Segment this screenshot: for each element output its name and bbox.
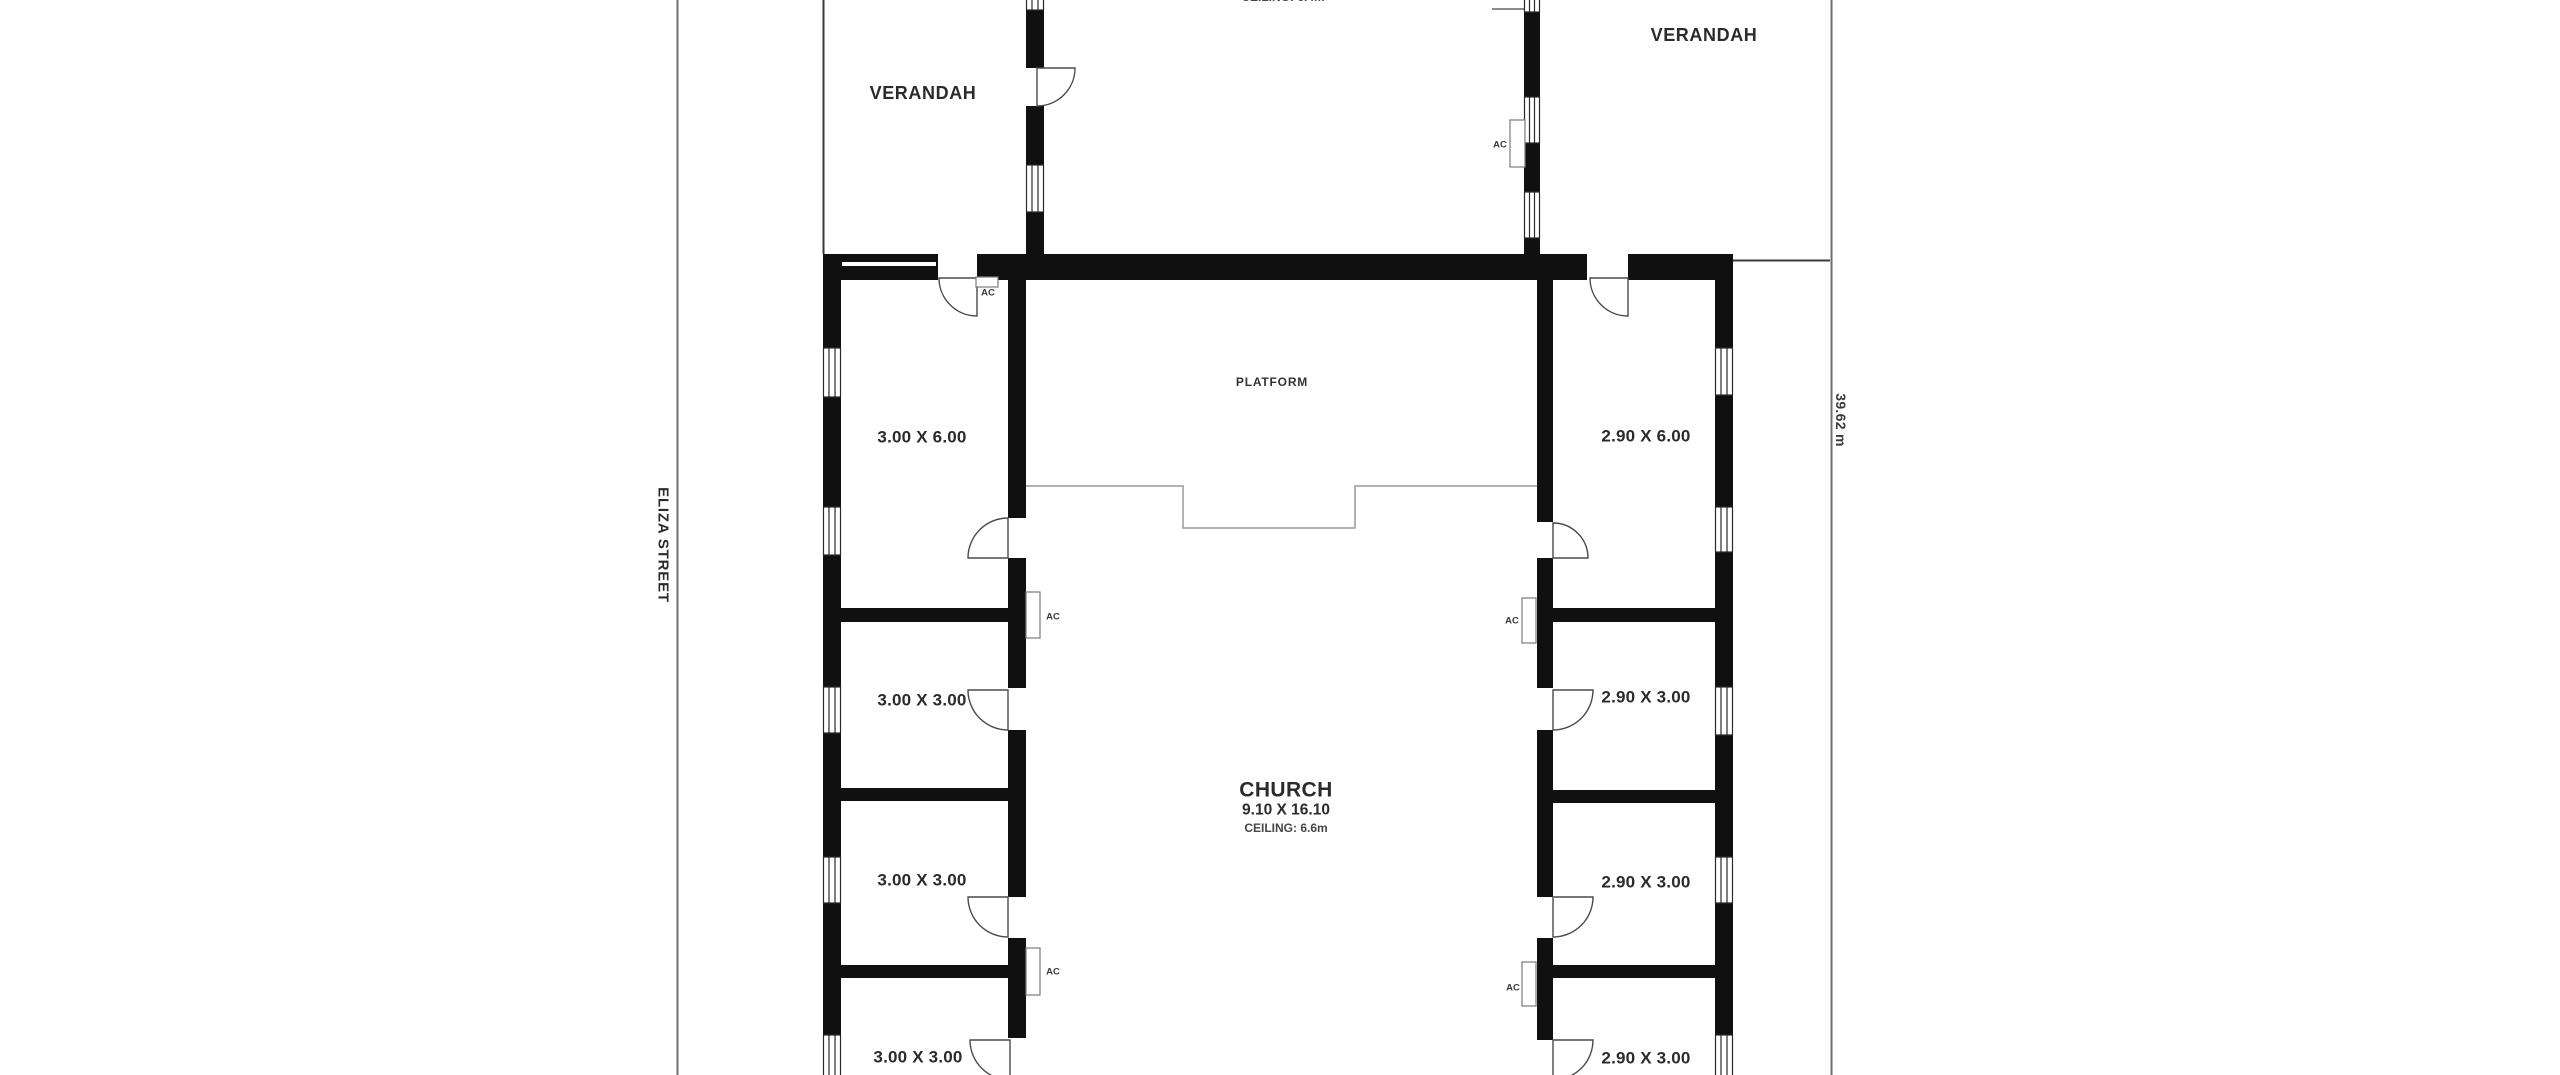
door-arc (1553, 897, 1593, 937)
window (824, 348, 841, 397)
main-wall-sliver (842, 262, 936, 266)
street-label: ELIZA STREET (656, 487, 671, 603)
window (1716, 348, 1733, 395)
door-arc (1553, 690, 1593, 730)
ac-unit (1510, 120, 1525, 167)
window (1716, 687, 1733, 735)
main-wall-center-segment (977, 254, 1587, 280)
floor-plan-page: ELIZA STREET 39.62 m VERANDAH VERANDAH C… (0, 0, 2560, 1075)
window (1716, 857, 1733, 903)
window (1027, 0, 1044, 10)
ac-units (976, 120, 1536, 1006)
window (1525, 192, 1540, 238)
room-label-right-2: 2.90 X 3.00 (1601, 689, 1690, 706)
floor-plan-drawing (0, 0, 2560, 1075)
window (1716, 1035, 1733, 1075)
windows (824, 0, 1733, 1075)
walls (823, 10, 1733, 1075)
church-name-label: CHURCH (1239, 780, 1332, 801)
door-arc (1553, 1040, 1593, 1075)
entry-ceiling-label: CEILING: 6.4m (1241, 0, 1324, 3)
window (1716, 507, 1733, 552)
ac-label: AC (1505, 616, 1519, 626)
church-ceiling-label: CEILING: 6.6m (1244, 822, 1327, 834)
platform-label: PLATFORM (1236, 376, 1308, 388)
room-label-left-2: 3.00 X 3.00 (877, 692, 966, 709)
door-arc (939, 278, 977, 316)
door-arc (968, 518, 1008, 558)
door-arc (968, 690, 1008, 730)
verandah-right-label: VERANDAH (1651, 26, 1758, 44)
window (824, 857, 841, 903)
boundary-length-label: 39.62 m (1834, 393, 1848, 446)
ac-unit (1522, 598, 1536, 643)
ac-label: AC (1046, 612, 1060, 622)
ac-unit (976, 277, 998, 287)
door-arc (1553, 523, 1588, 558)
room-label-right-1: 2.90 X 6.00 (1601, 428, 1690, 445)
platform-outline (1026, 486, 1537, 528)
ac-unit (1026, 592, 1040, 638)
window (1525, 0, 1540, 12)
ac-label: AC (1046, 967, 1060, 977)
room-label-left-1: 3.00 X 6.00 (877, 429, 966, 446)
verandah-left-label: VERANDAH (870, 84, 977, 102)
room-label-right-4: 2.90 X 3.00 (1601, 1050, 1690, 1067)
church-dimensions-label: 9.10 X 16.10 (1242, 802, 1330, 818)
window (824, 1035, 841, 1075)
window (824, 687, 841, 733)
ac-label: AC (1506, 983, 1520, 993)
door-arc (970, 1040, 1010, 1075)
door-arc (1037, 68, 1075, 106)
property-boundary-lines (678, 0, 1832, 1075)
window (1027, 165, 1044, 212)
door-arc (1590, 278, 1628, 316)
window (1525, 97, 1540, 143)
ac-label: AC (1493, 140, 1507, 150)
ac-label: AC (981, 288, 995, 298)
ac-unit (1026, 948, 1040, 995)
window (824, 507, 841, 555)
ac-unit (1522, 962, 1536, 1006)
door-arc (968, 897, 1008, 937)
room-label-left-3: 3.00 X 3.00 (877, 872, 966, 889)
room-label-left-4: 3.00 X 3.00 (873, 1049, 962, 1066)
room-label-right-3: 2.90 X 3.00 (1601, 874, 1690, 891)
